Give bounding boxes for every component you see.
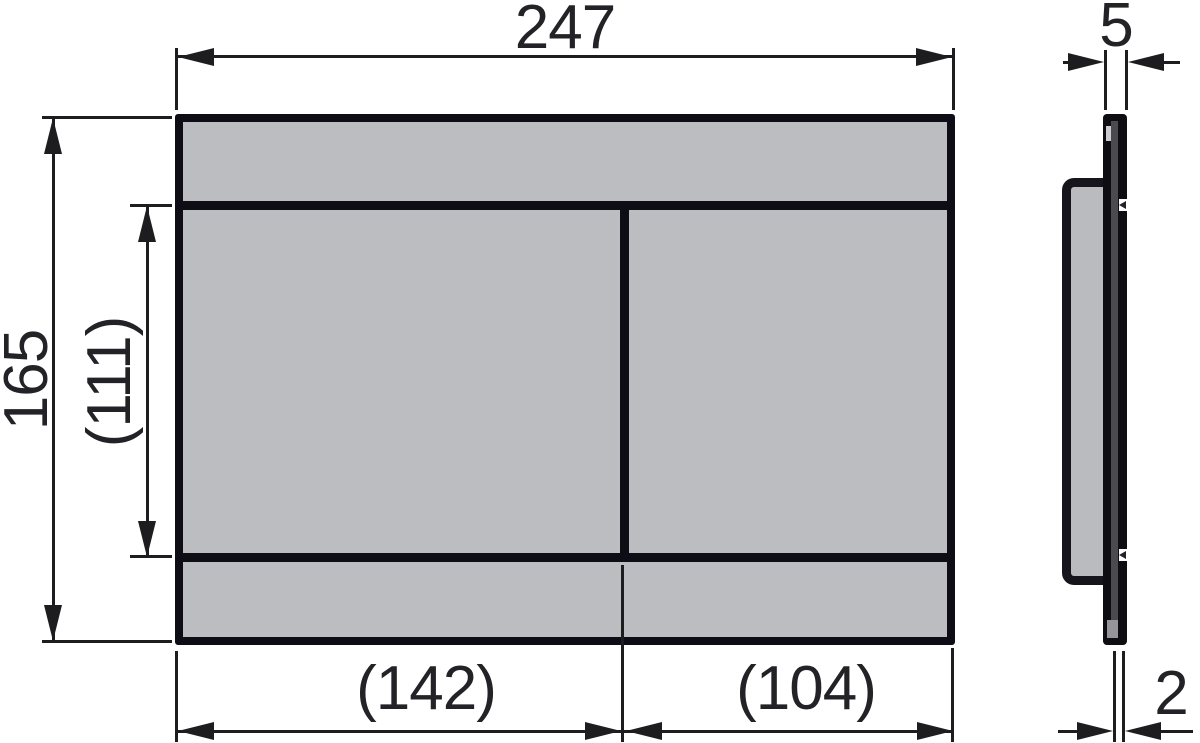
dim-104-line (623, 730, 953, 733)
dim-5-arrow-left-icon (1128, 53, 1164, 71)
dim-165-arrow-up-icon (44, 118, 62, 154)
dim-label-total-width: 247 (515, 0, 615, 59)
side-profile-top-mark (1106, 126, 1111, 141)
front-button-divider (620, 206, 629, 557)
side-profile-highlight (1111, 121, 1118, 638)
dim-247-arrow-left-icon (178, 48, 214, 66)
dim-label-total-height: 165 (0, 330, 58, 430)
dim-label-buttons-height: (111) (79, 317, 141, 448)
dim-111-line (146, 206, 149, 557)
dim-label-right-button-width: (104) (736, 658, 876, 720)
front-bottom-seam (183, 553, 947, 562)
front-top-seam (183, 201, 947, 210)
dim-2-arrow-right-icon (1077, 722, 1113, 740)
dim-111-arrow-up-icon (138, 206, 156, 242)
dim-bottom-extension-center (621, 565, 624, 742)
dim-247-arrow-right-icon (916, 48, 952, 66)
flush-plate-side-body (1062, 178, 1107, 585)
dim-104-arrow-right-icon (917, 722, 953, 740)
flush-plate-front-view (175, 114, 955, 645)
dim-5-tail-right (1164, 61, 1180, 64)
dim-104-arrow-left-icon (626, 722, 662, 740)
dimension-drawing: 247 165 (111) (142) (104) 5 2 (0, 0, 1200, 743)
dim-142-line (178, 730, 623, 733)
side-profile-bottom-mark (1107, 620, 1118, 638)
side-top-seam-wedge-icon (1119, 201, 1126, 209)
dim-142-arrow-right-icon (585, 722, 621, 740)
dim-label-total-depth: 5 (1099, 0, 1132, 57)
dim-label-left-button-width: (142) (356, 658, 496, 720)
side-bottom-seam-wedge-icon (1119, 551, 1126, 559)
dim-247-extension-right (952, 48, 955, 110)
dim-2-extension-left (1113, 651, 1116, 742)
dim-111-arrow-down-icon (138, 521, 156, 557)
dim-142-arrow-left-icon (178, 722, 214, 740)
dim-165-arrow-down-icon (44, 605, 62, 641)
dim-2-tail-right (1161, 730, 1193, 733)
dim-label-plate-thickness: 2 (1154, 663, 1187, 725)
